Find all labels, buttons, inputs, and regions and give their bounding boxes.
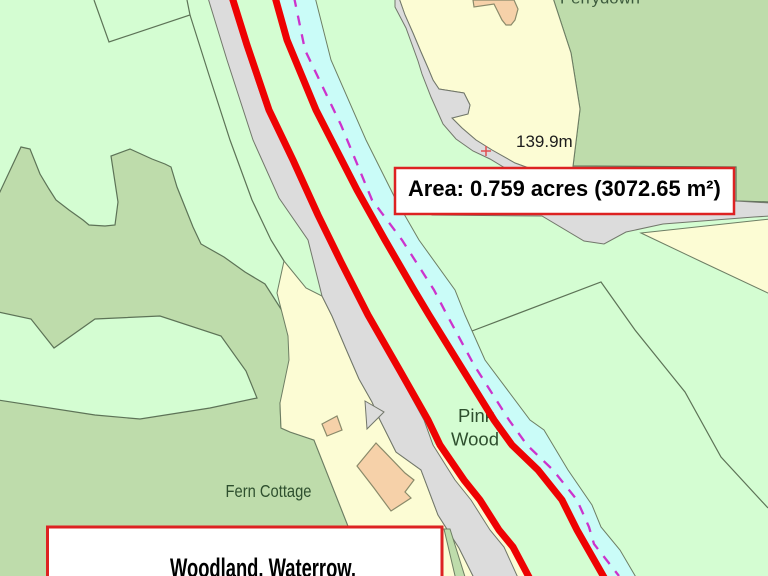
svg-text:139.9m: 139.9m (516, 132, 573, 151)
svg-text:Fern Cottage: Fern Cottage (226, 481, 312, 501)
svg-text:Wood: Wood (451, 429, 499, 450)
svg-text:Perrydown: Perrydown (560, 0, 640, 8)
svg-text:Area: 0.759 acres (3072.65 m²): Area: 0.759 acres (3072.65 m²) (408, 176, 721, 201)
svg-text:Woodland, Waterrow,: Woodland, Waterrow, (170, 553, 356, 576)
